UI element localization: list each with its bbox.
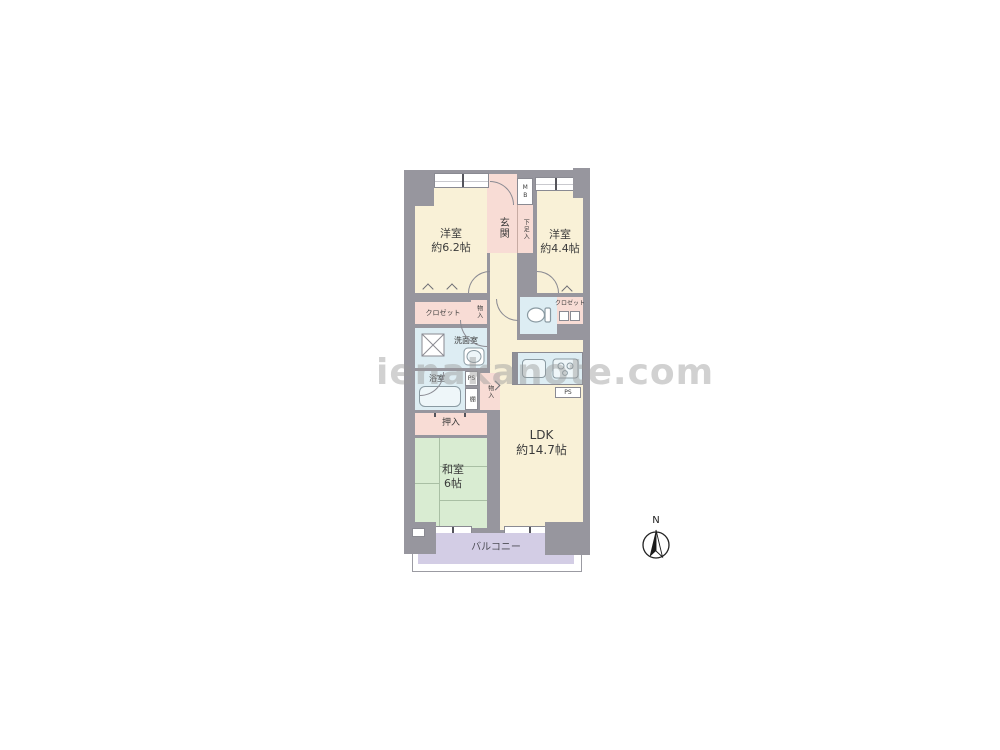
meter-box: MB — [517, 178, 533, 205]
sliding-door-mark — [464, 413, 466, 417]
room-western-2-name: 洋室 — [549, 228, 571, 242]
pillar-bottom-right — [545, 522, 590, 555]
oshiire: 押入 — [415, 413, 487, 435]
room-ldk-name: LDK — [530, 428, 554, 443]
toilet-room — [520, 297, 557, 334]
pillar-bottom-left — [404, 522, 436, 554]
room-western-1-area: 約6.2帖 — [431, 241, 471, 255]
pillar-top-left — [404, 170, 434, 206]
room-japanese-name: 和室 — [442, 463, 464, 477]
closet-shelf-box — [559, 311, 569, 321]
compass-needle-icon — [641, 526, 671, 562]
room-japanese-area: 6帖 — [444, 477, 462, 491]
floor-plan-page: ienakanote.com 洋室 約6.2帖 洋室 約4.4帖 玄関 MB 下… — [0, 0, 1000, 750]
entrance-label: 玄関 — [492, 208, 512, 248]
compass: N — [641, 516, 671, 566]
window-top-west2 — [535, 177, 575, 191]
closet-right-label: クロゼット — [557, 299, 583, 308]
pillar-top-right — [573, 168, 590, 198]
balcony-hatch-box — [412, 528, 425, 537]
room-western-2-area: 約4.4帖 — [540, 242, 580, 256]
shoe-cabinet: 下足入 — [517, 205, 533, 253]
closet-shelf-box — [570, 311, 580, 321]
closet-right: クロゼット — [557, 297, 583, 324]
tatami-line — [439, 500, 487, 501]
toilet-icon — [526, 306, 552, 324]
room-western-1-name: 洋室 — [440, 227, 462, 241]
window-top-west1 — [434, 173, 489, 188]
sliding-door-mark — [434, 413, 436, 417]
room-japanese: 和室 6帖 — [415, 438, 487, 528]
compass-north-label: N — [641, 516, 671, 526]
watermark: ienakanote.com — [376, 352, 714, 393]
room-ldk-area: 約14.7帖 — [516, 443, 567, 458]
